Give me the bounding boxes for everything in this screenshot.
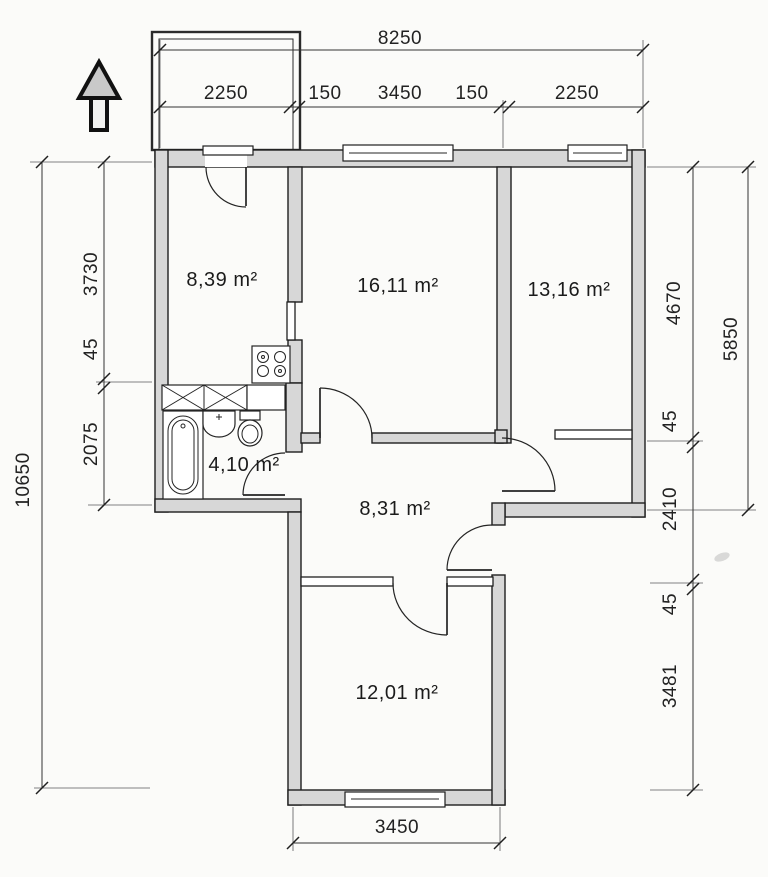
bath-shelf	[247, 385, 285, 410]
wall-bedroom-bottom-top-a	[301, 577, 393, 586]
wall-bedroom-bottom-right	[492, 575, 505, 805]
dim-left-seg-2: 2075	[81, 422, 102, 466]
wall-hall-top-a	[301, 433, 320, 443]
dim-top-total: 8250	[378, 28, 422, 49]
dim-right-outer: 5850	[721, 317, 742, 361]
dim-left-seg-1: 45	[81, 338, 102, 360]
wall-bathroom-bottom	[155, 499, 301, 512]
bedroom-right-area-label: 13,16 m²	[528, 279, 611, 301]
floor-plan-page: 8,39 m² 16,11 m² 13,16 m² 4,10 m² 8,31 m…	[0, 0, 768, 877]
bathtub	[163, 411, 203, 499]
bathroom-area-label: 4,10 m²	[208, 454, 279, 476]
dim-top-seg-2: 3450	[378, 83, 422, 104]
wall-entry-stub	[492, 503, 505, 525]
stove	[252, 346, 290, 383]
wall-hall-top-b	[372, 433, 503, 443]
wall-kitchen-living	[288, 167, 302, 302]
dim-right-seg-2: 2410	[660, 487, 681, 531]
dim-right-seg-3: 45	[660, 593, 681, 615]
dim-top-seg-3: 150	[455, 83, 488, 104]
wall-lower-left	[288, 512, 301, 805]
dim-right-seg-4: 3481	[660, 664, 681, 708]
wall-bathroom-hall	[286, 383, 302, 452]
dim-right-seg-1: 45	[660, 410, 681, 432]
dim-right-seg-0: 4670	[664, 281, 685, 325]
vent-shaft	[162, 385, 247, 410]
kitchen-area-label: 8,39 m²	[186, 269, 257, 291]
dim-left-total: 10650	[13, 452, 34, 507]
wall-bedroom-right-bottom	[555, 430, 632, 439]
bedroom-bottom-area-label: 12,01 m²	[356, 682, 439, 704]
wall-right	[632, 150, 645, 517]
toilet	[238, 411, 262, 446]
dim-left-seg-0: 3730	[81, 252, 102, 296]
sink	[203, 411, 235, 437]
wall-vestibule-stub	[495, 430, 507, 443]
kitchen-window	[203, 146, 253, 155]
dim-top-seg-0: 2250	[204, 83, 248, 104]
living-area-label: 16,11 m²	[357, 275, 438, 297]
dim-top-seg-4: 2250	[555, 83, 599, 104]
wall-bedroom-bottom-top-b	[447, 577, 493, 586]
kitchen-pass-opening	[287, 302, 295, 340]
wall-living-bedroom	[497, 167, 511, 443]
dim-bottom-width: 3450	[375, 817, 419, 838]
dim-top-seg-1: 150	[308, 83, 341, 104]
floor-plan-drawing: 8,39 m² 16,11 m² 13,16 m² 4,10 m² 8,31 m…	[0, 0, 768, 877]
hall-area-label: 8,31 m²	[359, 498, 430, 520]
wall-vestibule-bottom	[505, 503, 645, 517]
